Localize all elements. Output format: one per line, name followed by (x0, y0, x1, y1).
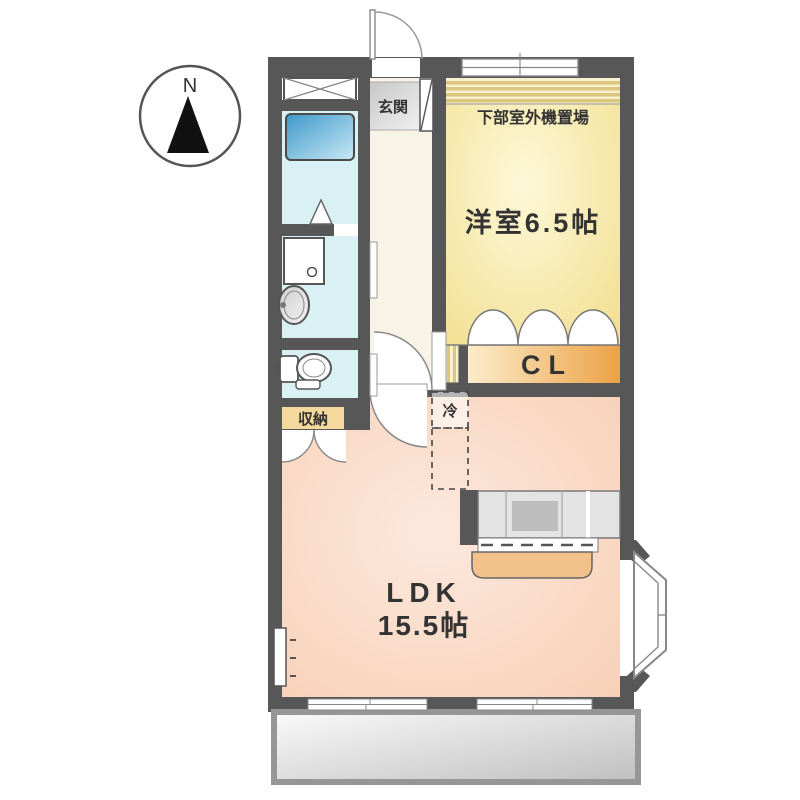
kitchen-sink (512, 501, 558, 531)
wall-shelf-cl (459, 345, 468, 383)
wall-hallway-right (432, 78, 446, 332)
outdoor-unit-stripe (446, 87, 620, 91)
washer-pan (284, 238, 324, 284)
window-sash (477, 699, 537, 705)
wall-washroom-toilet (282, 338, 370, 350)
outdoor-unit-stripe (446, 81, 620, 85)
wall-bath-washroom (282, 224, 334, 236)
window-sash (533, 705, 592, 711)
washer-drain (308, 268, 317, 277)
balcony (274, 712, 638, 782)
wall-storage-right (344, 407, 358, 430)
storage-label: 収納 (298, 410, 328, 428)
washroom-door-panel (370, 242, 377, 298)
wall-toilet-storage (282, 398, 370, 407)
entrance-door-leaf (370, 10, 375, 59)
outdoor-unit-band (446, 78, 620, 104)
toilet-base (296, 380, 320, 389)
wall-kitchen-stub (460, 490, 478, 545)
bathtub (286, 114, 354, 160)
compass-north-label: N (183, 75, 197, 97)
toilet-door-panel (370, 354, 377, 396)
entrance-label: 玄関 (378, 98, 408, 116)
intercom-panel (274, 628, 286, 686)
floorplan-svg: N (0, 0, 800, 800)
floorplan-page: N (0, 0, 800, 800)
wall-meter-bath (282, 100, 358, 111)
window-sash (308, 699, 370, 705)
meter-box (284, 78, 356, 100)
shoe-cabinet (420, 79, 433, 131)
outdoor-unit-stripe (446, 93, 620, 97)
ldk-label-line1: LDK (386, 577, 462, 608)
entrance-opening (372, 58, 420, 77)
wall-left (268, 57, 282, 712)
outdoor-unit-stripe (446, 99, 620, 103)
western-room-label: 洋室6.5帖 (465, 207, 602, 238)
ldk-label-line2: 15.5帖 (378, 610, 471, 641)
outdoor-unit-label: 下部室外機置場 (477, 108, 589, 127)
toilet-handle (275, 362, 280, 370)
refrigerator-label: 冷 (442, 402, 457, 420)
washbasin-tap-icon (280, 302, 286, 308)
wall-top (268, 57, 634, 78)
closet-label: CL (521, 350, 573, 380)
western-door-opening (432, 332, 446, 390)
toilet-bowl (297, 354, 331, 382)
closet-folding-doors (468, 310, 618, 345)
compass: N (140, 66, 240, 166)
window-sash (366, 705, 427, 711)
wall-right-upper (620, 57, 634, 560)
counter-pass-through (478, 538, 598, 552)
bar-counter (472, 552, 592, 578)
wall-hallway-left (358, 78, 370, 430)
toilet-tank (280, 356, 298, 382)
